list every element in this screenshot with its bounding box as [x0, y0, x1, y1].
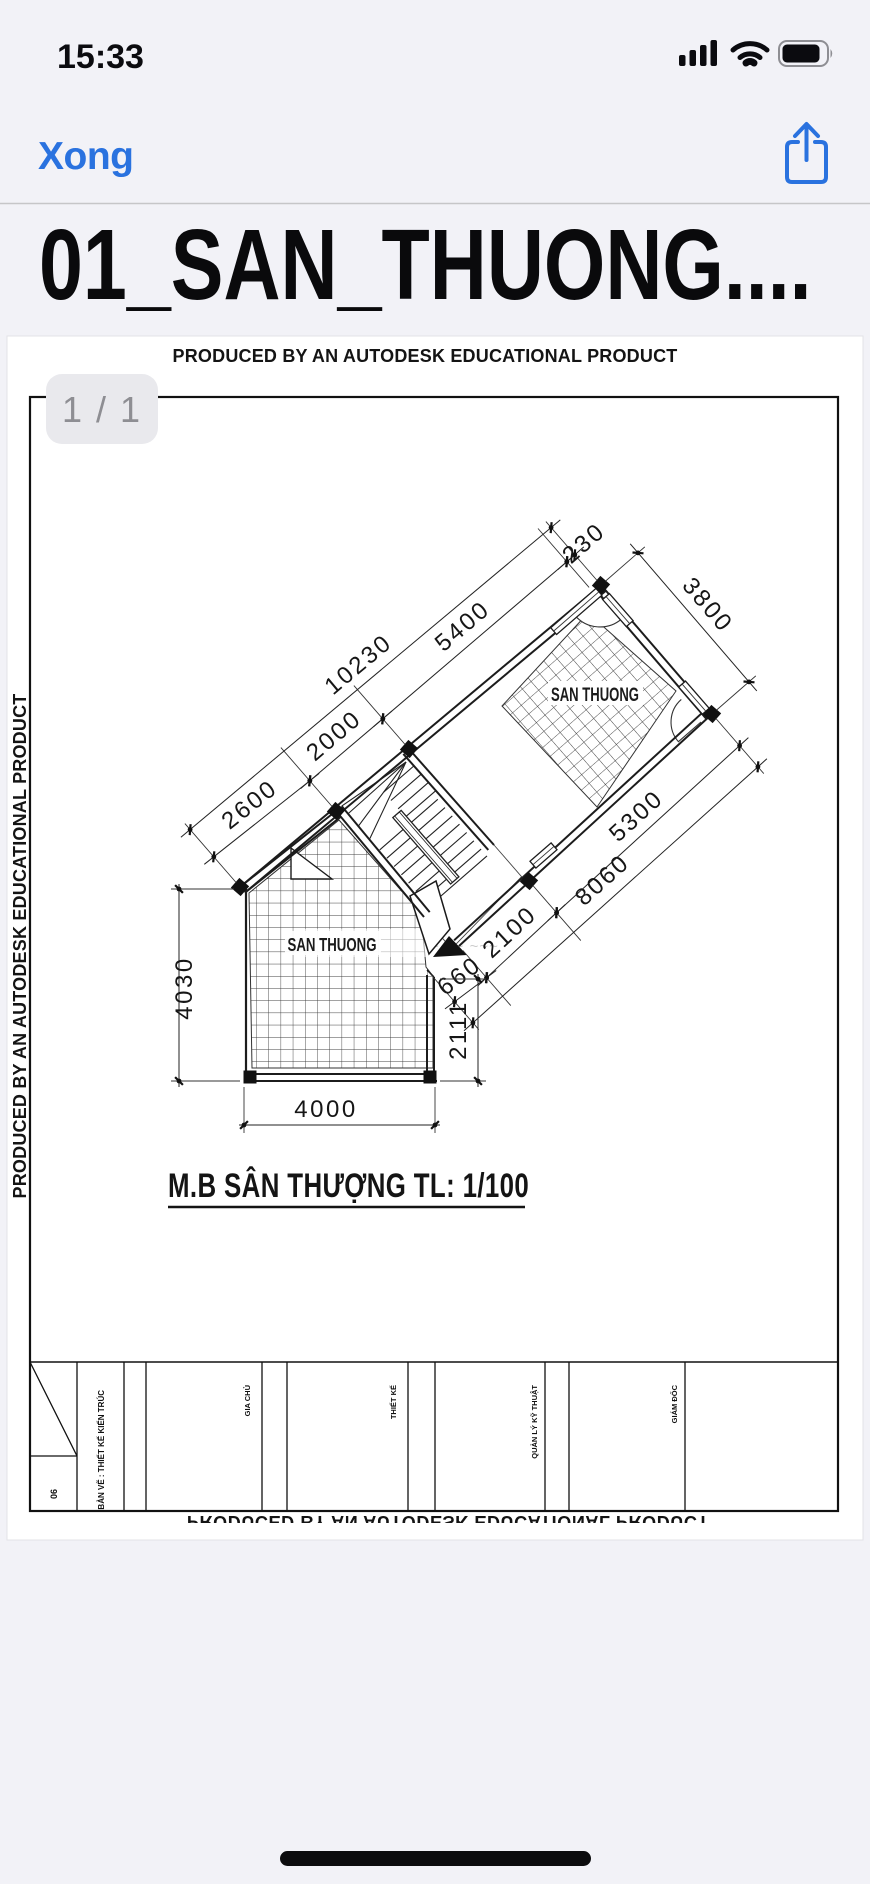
- svg-text:BẢN VẼ : THIẾT KẾ KIẾN TRÚC: BẢN VẼ : THIẾT KẾ KIẾN TRÚC: [96, 1390, 106, 1510]
- svg-text:GIA CHỦ: GIA CHỦ: [243, 1385, 252, 1416]
- svg-text:Xong: Xong: [38, 135, 133, 178]
- svg-text:THIẾT KẾ: THIẾT KẾ: [388, 1385, 398, 1419]
- svg-text:GIÁM ĐỐC: GIÁM ĐỐC: [669, 1384, 679, 1423]
- svg-text:SAN THUONG: SAN THUONG: [551, 685, 639, 706]
- svg-text:QUẢN LÝ KỸ THUẬT: QUẢN LÝ KỸ THUẬT: [530, 1385, 539, 1459]
- svg-text:01_SAN_THUONG....: 01_SAN_THUONG....: [39, 209, 812, 321]
- svg-text:06: 06: [49, 1489, 59, 1499]
- svg-text:4030: 4030: [171, 956, 198, 1019]
- svg-text:1 / 1: 1 / 1: [62, 389, 142, 430]
- svg-text:PRODUCED BY AN AUTODESK EDUCAT: PRODUCED BY AN AUTODESK EDUCATIONAL PROD…: [10, 694, 30, 1199]
- svg-text:15:33: 15:33: [57, 38, 144, 76]
- svg-text:PRODUCED BY AN AUTODESK EDUCAT: PRODUCED BY AN AUTODESK EDUCATIONAL PROD…: [173, 346, 678, 366]
- svg-text:M.B SÂN THƯỢNG TL: 1/100: M.B SÂN THƯỢNG TL: 1/100: [168, 1167, 529, 1205]
- svg-text:4000: 4000: [294, 1096, 357, 1123]
- svg-text:2111: 2111: [445, 1000, 472, 1060]
- svg-text:SAN THUONG: SAN THUONG: [288, 934, 377, 955]
